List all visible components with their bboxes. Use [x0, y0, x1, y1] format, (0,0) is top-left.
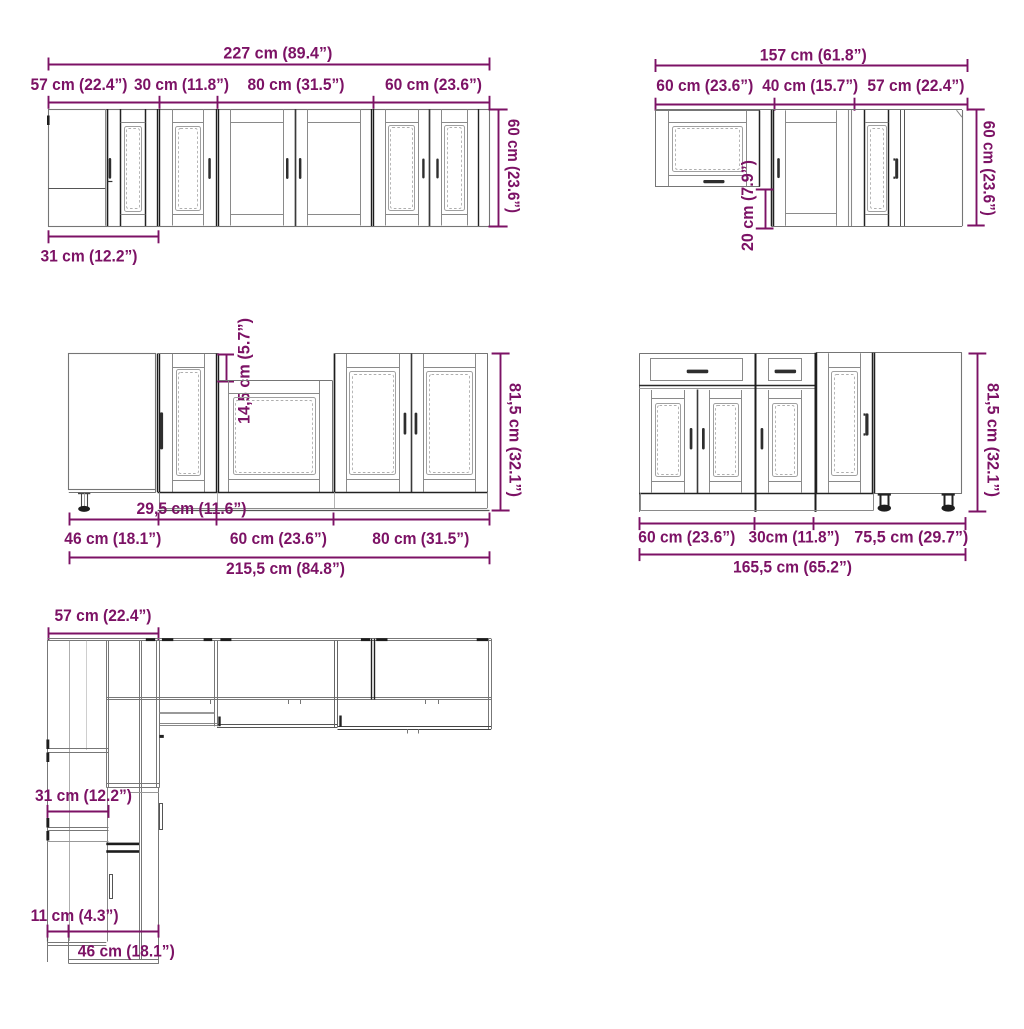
svg-text:157 cm (61.8”): 157 cm (61.8”): [760, 46, 867, 65]
svg-text:165,5 cm (65.2”): 165,5 cm (65.2”): [733, 558, 852, 577]
svg-text:60 cm (23.6”): 60 cm (23.6”): [638, 527, 735, 546]
svg-text:80 cm (31.5”): 80 cm (31.5”): [248, 75, 345, 94]
svg-text:11 cm (4.3”): 11 cm (4.3”): [31, 906, 119, 925]
svg-text:30cm (11.8”): 30cm (11.8”): [749, 527, 840, 546]
svg-text:20 cm (7.9”): 20 cm (7.9”): [738, 160, 757, 251]
svg-text:227 cm (89.4”): 227 cm (89.4”): [223, 44, 332, 63]
svg-text:60 cm (23.6”): 60 cm (23.6”): [656, 76, 753, 95]
svg-text:60 cm (23.6”): 60 cm (23.6”): [504, 119, 523, 213]
svg-text:31 cm (12.2”): 31 cm (12.2”): [35, 786, 132, 805]
svg-text:81,5 cm (32.1”): 81,5 cm (32.1”): [983, 383, 1002, 497]
svg-text:75,5 cm (29.7”): 75,5 cm (29.7”): [854, 527, 968, 546]
svg-text:57 cm (22.4”): 57 cm (22.4”): [867, 76, 964, 95]
svg-text:57 cm (22.4”): 57 cm (22.4”): [31, 75, 128, 94]
svg-text:215,5 cm (84.8”): 215,5 cm (84.8”): [226, 559, 345, 578]
svg-text:14,5 cm (5.7”): 14,5 cm (5.7”): [234, 318, 253, 424]
svg-text:46 cm (18.1”): 46 cm (18.1”): [64, 529, 161, 548]
svg-text:60 cm (23.6”): 60 cm (23.6”): [980, 121, 999, 216]
svg-text:46 cm (18.1”): 46 cm (18.1”): [78, 942, 175, 961]
svg-text:29,5 cm (11.6”): 29,5 cm (11.6”): [137, 499, 247, 518]
svg-text:30 cm (11.8”): 30 cm (11.8”): [134, 75, 229, 94]
svg-text:81,5 cm (32.1”): 81,5 cm (32.1”): [505, 383, 524, 497]
svg-text:31 cm (12.2”): 31 cm (12.2”): [41, 247, 138, 266]
svg-text:60 cm (23.6”): 60 cm (23.6”): [230, 529, 327, 548]
svg-text:57 cm (22.4”): 57 cm (22.4”): [55, 606, 152, 625]
svg-text:80 cm (31.5”): 80 cm (31.5”): [372, 529, 469, 548]
svg-text:40 cm (15.7”): 40 cm (15.7”): [762, 76, 858, 95]
svg-text:60 cm (23.6”): 60 cm (23.6”): [385, 75, 482, 94]
